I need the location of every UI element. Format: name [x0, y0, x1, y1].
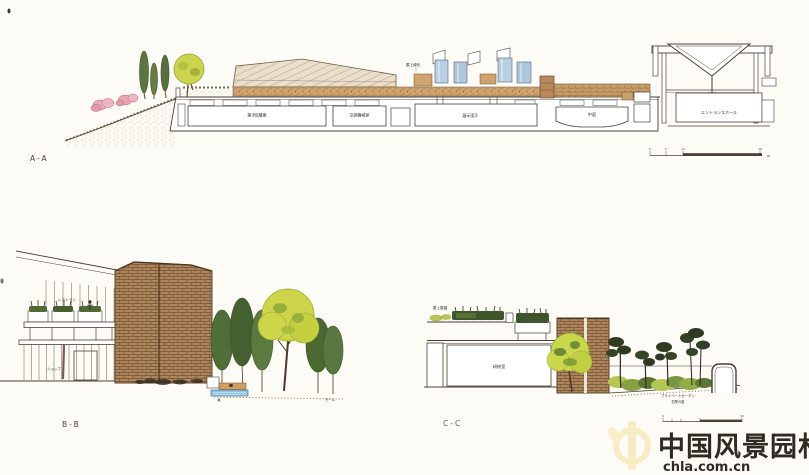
svg-text:20: 20	[740, 414, 744, 418]
garden-shrubs	[608, 376, 713, 391]
roof-garden: 屋上庭園	[427, 305, 513, 323]
room-label-entrance-hall: エントランスホール	[701, 109, 737, 115]
lower-glass-wall	[24, 345, 114, 381]
watermark-logo-icon	[605, 421, 648, 470]
scanned-section-drawing: 中国风景园林网 chla.com.cn	[0, 0, 809, 475]
mall-label: モール	[325, 398, 336, 402]
scan-artifacts	[0, 9, 10, 284]
brick-tower	[115, 262, 212, 385]
room-label-courtyard: 中庭	[588, 111, 597, 118]
room-label-machine: 空調機械室	[350, 112, 370, 118]
sloped-roof-lines	[16, 251, 117, 275]
section-a-label: A-A	[30, 154, 49, 163]
layered-roof	[540, 76, 650, 98]
architectural-sections-svg: 中国风景园林网 chla.com.cn	[0, 0, 809, 475]
scale-bar-c: 0 20	[662, 414, 744, 422]
private-garden-label: プライベートガーデン	[661, 393, 696, 398]
rooftop-planter-box	[515, 308, 550, 341]
underground-level: 第3収蔵庫 空調機械室 展示室2 中庭	[170, 97, 658, 131]
svg-text:0: 0	[649, 147, 651, 151]
room-entrance-hall	[676, 93, 762, 122]
svg-text:20: 20	[758, 147, 762, 151]
pink-shrubs	[91, 94, 138, 112]
rooflight-fins: 屋上緑化	[406, 48, 531, 86]
section-c-label: C-C	[443, 419, 462, 428]
section-b-label: B-B	[62, 420, 81, 429]
shop-label: ショップ	[47, 366, 61, 371]
svg-text:0: 0	[662, 414, 664, 418]
roof-greening-label: 屋上緑化	[406, 62, 421, 67]
svg-text:m: m	[767, 154, 771, 158]
section-a-drawing: 第3収蔵庫 空調機械室 展示室2 中庭	[30, 44, 776, 163]
entry-door	[74, 351, 97, 380]
section-b-drawing: レストラン ショップ ロビー	[0, 251, 345, 429]
poplar-trees	[140, 51, 170, 99]
room-label-storage: 第3収蔵庫	[247, 112, 266, 119]
scale-bar-a: 0 5 10 20 m	[649, 147, 771, 158]
watermark: 中国风景园林网 chla.com.cn	[605, 421, 809, 475]
room-label-exhibition: 展示室2	[462, 112, 478, 119]
mid-columns	[30, 328, 112, 341]
watermark-site-url: chla.com.cn	[663, 460, 750, 475]
room-courtyard	[556, 107, 628, 127]
lower-slab	[19, 340, 117, 345]
water-feature	[207, 377, 248, 396]
private-garden-sub-label: 四季の庭	[672, 399, 686, 404]
restaurant-label: レストラン	[58, 297, 76, 302]
section-c-drawing: 屋上庭園 研修室	[424, 305, 744, 428]
terrace-slab	[24, 322, 117, 328]
roof-garden-label: 屋上庭園	[433, 305, 448, 310]
room-label-training: 研修室	[493, 363, 506, 370]
watermark-site-name: 中国风景园林网	[658, 432, 809, 463]
glasshouse-roof	[233, 59, 396, 87]
svg-text:5: 5	[665, 147, 667, 151]
private-garden: プライベートガーデン 四季の庭	[606, 328, 740, 404]
planted-roof-texture	[233, 87, 545, 96]
red-streak	[63, 345, 64, 379]
waterfall-label: 滝	[217, 397, 221, 402]
svg-text:10: 10	[681, 147, 685, 151]
garden-arch	[712, 364, 736, 393]
